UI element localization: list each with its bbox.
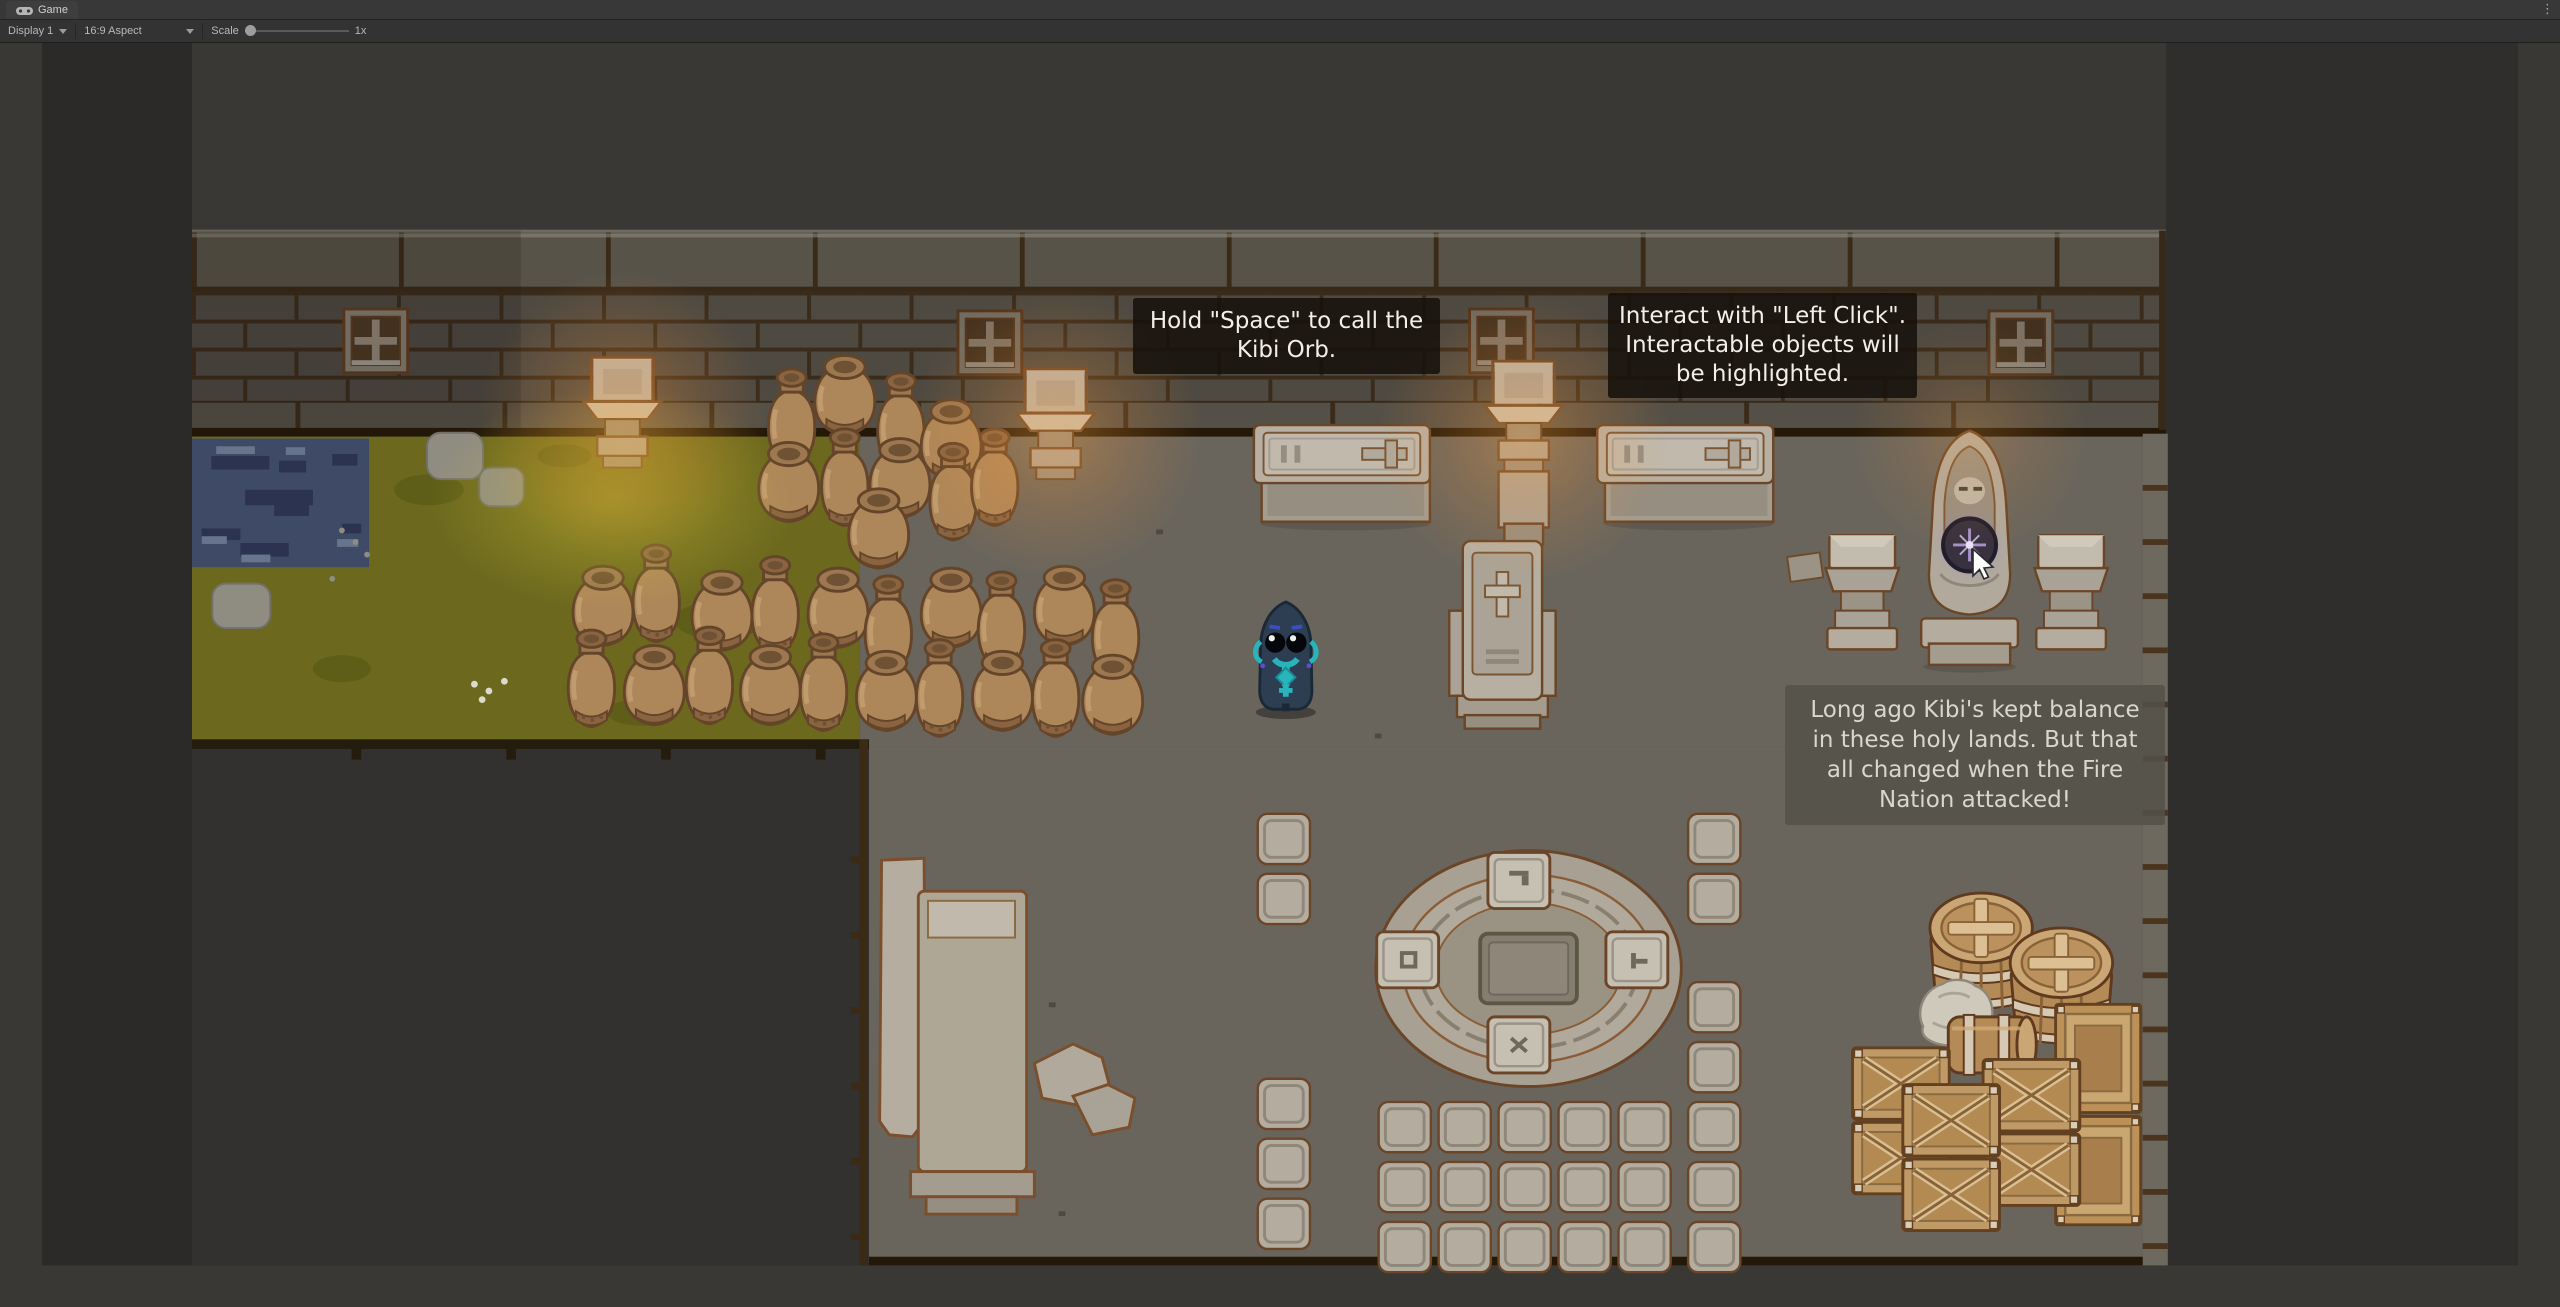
tab-game-label: Game (38, 4, 68, 16)
stone-slab (1258, 1139, 1310, 1189)
crate (1903, 1085, 2000, 1231)
scale-control: Scale 1x (203, 20, 374, 42)
stone-slab (1618, 1222, 1670, 1272)
stone-slab (1688, 1162, 1740, 1212)
aspect-dropdown[interactable]: 16:9 Aspect (76, 20, 202, 42)
ritual-dais (1376, 851, 1682, 1087)
stone-slab (1258, 814, 1310, 864)
kebab-menu-icon[interactable]: ⋮ (2541, 1, 2554, 17)
rune-tablet-west (1377, 932, 1439, 988)
hint-interact-tooltip: Interact with "Left Click". Interactable… (1608, 293, 1917, 398)
stone-slab (1688, 814, 1740, 864)
display-dropdown[interactable]: Display 1 (0, 20, 75, 42)
stone-slab (1688, 982, 1740, 1032)
dialogue-box: Long ago Kibi's kept balance in these ho… (1785, 685, 2165, 825)
caret-down-icon (59, 29, 67, 34)
display-dropdown-label: Display 1 (8, 25, 53, 37)
stone-slab (1559, 1222, 1611, 1272)
stone-slab (1499, 1162, 1551, 1212)
stone-slab (1379, 1162, 1431, 1212)
pot (856, 651, 916, 730)
tab-game[interactable]: Game (6, 1, 78, 19)
gamepad-icon (16, 5, 33, 16)
rune-tablet-north (1488, 852, 1550, 908)
pot (1034, 566, 1094, 645)
scale-value: 1x (355, 25, 367, 37)
mouse-cursor-icon (1972, 548, 1996, 582)
pond (192, 439, 369, 568)
stone-slab (1688, 1042, 1740, 1092)
game-view-toolbar: Display 1 16:9 Aspect Scale 1x Maximize … (0, 20, 2560, 43)
scale-slider-knob[interactable] (245, 25, 256, 36)
stone-block (1787, 552, 1823, 581)
stone-slab (1379, 1222, 1431, 1272)
stone-slab (1258, 1199, 1310, 1249)
pot (1083, 655, 1143, 734)
side-altar (2034, 535, 2107, 649)
side-altar (1825, 535, 1898, 649)
pot (972, 651, 1032, 730)
scale-slider[interactable] (245, 20, 349, 42)
wall-window-icon (344, 309, 408, 373)
game-scene (0, 43, 2560, 1307)
stone-slab (1258, 874, 1310, 924)
stone-slab (1439, 1102, 1491, 1152)
hint-space-tooltip: Hold "Space" to call the Kibi Orb. (1133, 298, 1440, 374)
game-viewport[interactable]: Hold "Space" to call the Kibi Orb. Inter… (0, 43, 2560, 1307)
stone-slab (1618, 1162, 1670, 1212)
scale-label: Scale (211, 25, 239, 37)
stone-slab (1499, 1102, 1551, 1152)
pot (849, 489, 909, 568)
caret-down-icon (186, 29, 194, 34)
stone-slab (1559, 1162, 1611, 1212)
game-view-tabbar: Game ⋮ (0, 0, 2560, 20)
pot (624, 646, 684, 725)
stone-slab (1618, 1102, 1670, 1152)
stone-slab (1439, 1162, 1491, 1212)
stone-slab (1688, 874, 1740, 924)
pot (815, 355, 875, 434)
stone-slab (1439, 1222, 1491, 1272)
scale-slider-track[interactable] (245, 30, 349, 32)
unity-game-window: Game ⋮ Display 1 16:9 Aspect Scale 1x Ma… (0, 0, 2560, 1307)
stone-slab (1258, 1079, 1310, 1129)
stone-slab (1379, 1102, 1431, 1152)
stone-slab (1688, 1102, 1740, 1152)
stone-slab (1499, 1222, 1551, 1272)
pot (740, 646, 800, 725)
stone-slab (1688, 1222, 1740, 1272)
aspect-dropdown-label: 16:9 Aspect (84, 25, 142, 37)
stone-slab (1559, 1102, 1611, 1152)
pot (921, 568, 981, 647)
